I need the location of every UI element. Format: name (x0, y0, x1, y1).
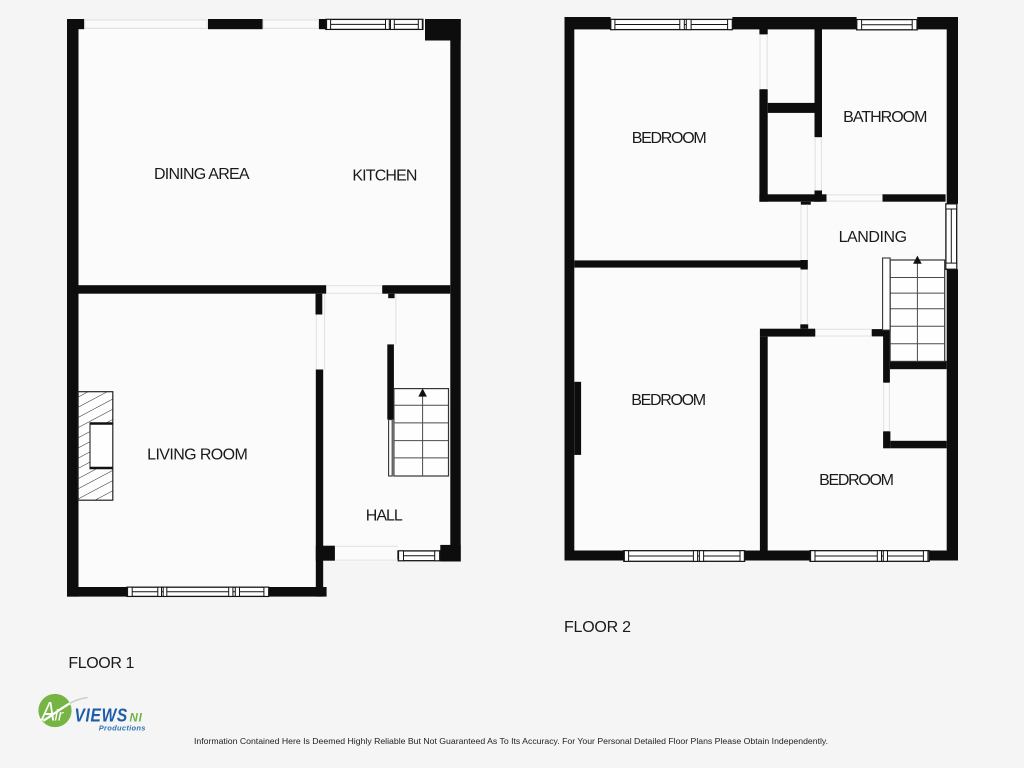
svg-text:A: A (40, 697, 56, 727)
svg-text:Information Contained Here Is: Information Contained Here Is Deemed Hig… (194, 736, 828, 746)
svg-text:BEDROOM: BEDROOM (819, 472, 894, 489)
svg-text:BEDROOM: BEDROOM (631, 392, 706, 409)
svg-text:LANDING: LANDING (839, 229, 907, 246)
svg-text:DINING AREA: DINING AREA (154, 166, 250, 183)
svg-text:HALL: HALL (366, 508, 403, 525)
svg-text:BATHROOM: BATHROOM (843, 109, 927, 126)
svg-text:KITCHEN: KITCHEN (352, 167, 417, 184)
svg-text:FLOOR 1: FLOOR 1 (68, 655, 134, 672)
svg-text:Productions: Productions (99, 723, 146, 732)
svg-text:LIVING ROOM: LIVING ROOM (147, 447, 247, 464)
svg-text:BEDROOM: BEDROOM (632, 130, 707, 147)
svg-text:FLOOR 2: FLOOR 2 (564, 619, 631, 636)
svg-text:ir: ir (55, 708, 65, 725)
